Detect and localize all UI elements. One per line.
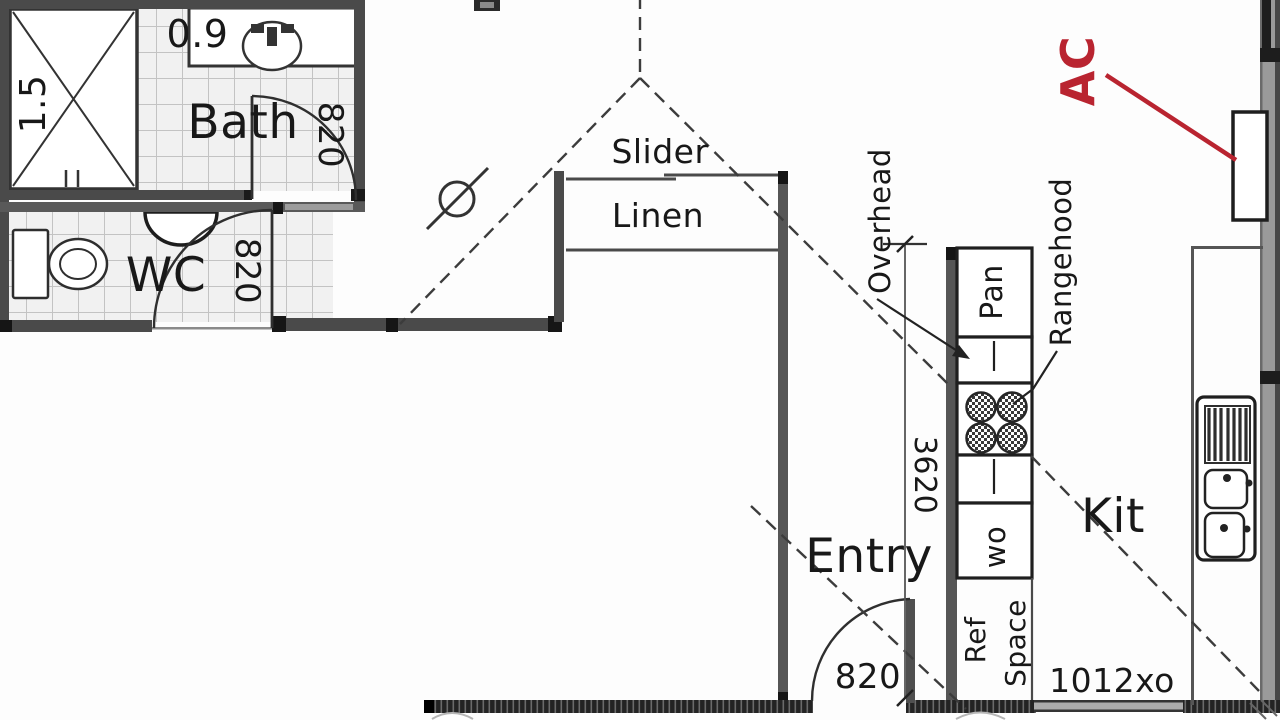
label-overhead: Overhead	[861, 141, 899, 301]
label-pantry: Pan	[973, 250, 1013, 334]
label-rangehood: Rangehood	[1042, 174, 1080, 350]
label-window-code: 1012xo	[1048, 658, 1176, 702]
room-label-entry: Entry	[795, 524, 943, 588]
label-ref: Ref	[959, 605, 993, 675]
dim-entry-door: 820	[833, 654, 903, 700]
ac-leader-line	[1106, 75, 1236, 160]
exterior-right-wall	[1260, 0, 1280, 713]
ac-unit	[1233, 112, 1267, 220]
floor-plan: 0.9 1.5 Bath 820 WC 820 Slider Linen Ove…	[0, 0, 1280, 720]
tap-icon	[251, 24, 264, 33]
circle-slash-symbol	[427, 168, 488, 229]
label-slider: Slider	[598, 129, 722, 173]
kitchen-sink-icon	[1197, 397, 1255, 560]
bottom-wall	[424, 700, 1280, 719]
ceiling-dashed-lines	[400, 0, 1259, 709]
room-label-kit: Kit	[1068, 484, 1158, 548]
label-ref-space: Space	[999, 588, 1033, 698]
label-wall-oven: wo	[977, 515, 1013, 579]
dim-shower-width: 0.9	[145, 8, 250, 60]
room-label-wc: WC	[116, 236, 216, 314]
dim-kitchen-run: 3620	[906, 427, 942, 523]
dim-bath-door: 820	[309, 93, 351, 177]
sink-bowl	[1205, 513, 1244, 557]
dim-shower-depth: 1.5	[12, 59, 56, 149]
dim-wc-door: 820	[226, 229, 268, 313]
room-label-linen: Linen	[600, 190, 716, 240]
room-label-bath: Bath	[178, 90, 308, 154]
label-ac: AC	[1053, 26, 1103, 116]
